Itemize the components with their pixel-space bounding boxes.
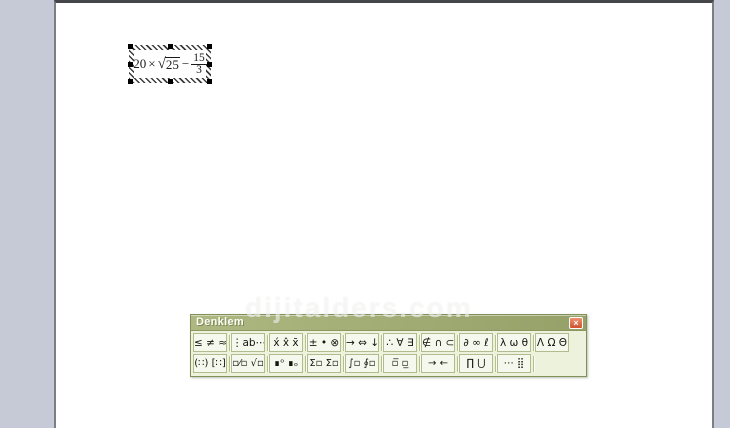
summation-templates-button[interactable]: Σ▫ Σ▫	[307, 354, 341, 373]
equation-toolbar-panel: ≤ ≠ ≈⋮ab⋯x́ x̂ x̄± • ⊗→ ⇔ ↓∴ ∀ ∃∉ ∩ ⊂∂ ∞…	[191, 331, 586, 376]
radicand: 25	[165, 57, 180, 71]
selection-handle[interactable]	[207, 79, 212, 84]
toolbar-separator	[229, 356, 230, 372]
toolbar-separator	[495, 335, 496, 351]
subscript-superscript-templates-button[interactable]: ∎ᵒ ∎ₒ	[269, 354, 303, 373]
operator-symbols-button[interactable]: ± • ⊗	[307, 333, 341, 352]
product-set-templates-button[interactable]: ∏ ⋃	[459, 354, 493, 373]
relational-symbols-button[interactable]: ≤ ≠ ≈	[193, 333, 227, 352]
toolbar-separator	[495, 356, 496, 372]
fraction-denominator: 3	[194, 65, 204, 76]
toolbar-separator	[305, 335, 306, 351]
equation-toolbar-title: Denklem	[196, 316, 244, 328]
selection-handle[interactable]	[128, 79, 133, 84]
toolbar-separator	[229, 335, 230, 351]
toolbar-separator	[533, 335, 534, 351]
times-operator: ×	[146, 56, 157, 72]
spaces-ellipses-button[interactable]: ⋮ab⋯	[231, 333, 265, 352]
embellishments-button[interactable]: x́ x̂ x̄	[269, 333, 303, 352]
overbar-underbar-templates-button[interactable]: ▫̅ ▫̲	[383, 354, 417, 373]
equation-toolbar: Denklem × ≤ ≠ ≈⋮ab⋯x́ x̂ x̄± • ⊗→ ⇔ ↓∴ ∀…	[190, 314, 587, 377]
toolbar-separator	[419, 335, 420, 351]
greek-uppercase-button[interactable]: Λ Ω Θ	[535, 333, 569, 352]
toolbar-separator	[457, 335, 458, 351]
toolbar-separator	[343, 335, 344, 351]
selection-handle[interactable]	[207, 44, 212, 49]
close-icon: ×	[573, 318, 578, 328]
selection-handle[interactable]	[128, 44, 133, 49]
matrix-templates-button[interactable]: ⋯ ⣿	[497, 354, 531, 373]
radical-expression: √25	[158, 57, 180, 71]
equation-object[interactable]: 20×√25−153	[129, 45, 211, 83]
toolbar-separator	[457, 356, 458, 372]
toolbar-separator	[533, 356, 534, 372]
equation-formula: 20×√25−153	[134, 50, 206, 78]
equation-term: 20	[133, 56, 146, 72]
labeled-arrow-templates-button[interactable]: → ←	[421, 354, 455, 373]
selection-handle[interactable]	[128, 62, 133, 67]
misc-symbols-button[interactable]: ∂ ∞ ℓ	[459, 333, 493, 352]
close-button[interactable]: ×	[569, 317, 583, 329]
workspace: 20×√25−153 Denklem × ≤ ≠ ≈⋮ab⋯x́ x̂ x̄± …	[0, 0, 730, 428]
equation-toolbar-titlebar[interactable]: Denklem ×	[191, 315, 586, 331]
set-theory-symbols-button[interactable]: ∉ ∩ ⊂	[421, 333, 455, 352]
selection-handle[interactable]	[168, 44, 173, 49]
selection-handle[interactable]	[168, 79, 173, 84]
toolbar-separator	[419, 356, 420, 372]
toolbar-separator	[267, 356, 268, 372]
selection-handle[interactable]	[207, 62, 212, 67]
toolbar-separator	[381, 356, 382, 372]
fraction: 153	[191, 53, 207, 76]
integral-templates-button[interactable]: ∫▫ ∮▫	[345, 354, 379, 373]
minus-operator: −	[180, 56, 191, 72]
toolbar-separator	[381, 335, 382, 351]
toolbar-separator	[305, 356, 306, 372]
logical-symbols-button[interactable]: ∴ ∀ ∃	[383, 333, 417, 352]
template-palette-row: (∷) [∷]▫⁄▫ √▫∎ᵒ ∎ₒΣ▫ Σ▫∫▫ ∮▫▫̅ ▫̲→ ←∏ ⋃⋯…	[193, 353, 584, 374]
toolbar-separator	[267, 335, 268, 351]
fraction-radical-templates-button[interactable]: ▫⁄▫ √▫	[231, 354, 265, 373]
symbol-palette-row: ≤ ≠ ≈⋮ab⋯x́ x̂ x̄± • ⊗→ ⇔ ↓∴ ∀ ∃∉ ∩ ⊂∂ ∞…	[193, 332, 584, 353]
fence-templates-button[interactable]: (∷) [∷]	[193, 354, 227, 373]
toolbar-separator	[343, 356, 344, 372]
fraction-numerator: 15	[191, 53, 207, 65]
arrow-symbols-button[interactable]: → ⇔ ↓	[345, 333, 379, 352]
greek-lowercase-button[interactable]: λ ω θ	[497, 333, 531, 352]
